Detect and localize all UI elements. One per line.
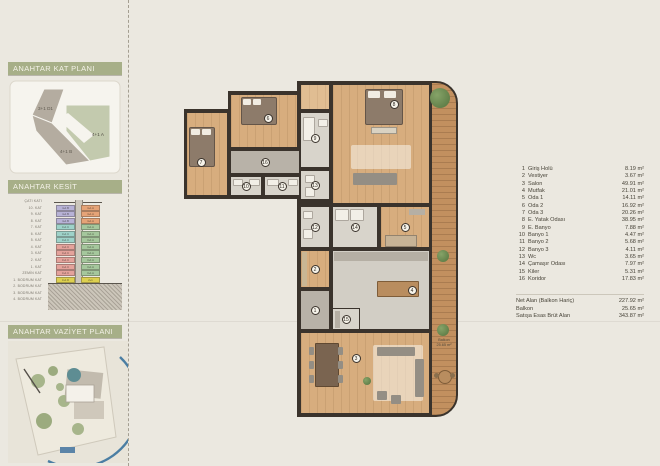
terrace-plant-icon	[437, 324, 449, 336]
legend-row: 14Çamaşır Odası7.97 m²	[516, 261, 644, 268]
section-unit-cell: 3+1 C	[56, 257, 75, 263]
key-plan-header: ANAHTAR KAT PLANI	[8, 62, 122, 75]
legend-row-area: 5.31 m²	[625, 269, 644, 276]
legend-row-area: 8.19 m²	[625, 166, 644, 173]
section-unit-cell: 3+1 C	[56, 270, 75, 276]
legend-row-name: Oda 3	[528, 210, 622, 217]
legend-row: 3Salon49.91 m²	[516, 181, 644, 188]
legend-row-name: Salon	[528, 181, 622, 188]
legend-row-name: Banyo 2	[528, 239, 625, 246]
legend-row-number: 7	[516, 210, 525, 217]
legend-row-number: 2	[516, 173, 525, 180]
terrace-chair-icon	[434, 373, 439, 378]
section-unit-cell: 3+1 A	[81, 244, 100, 250]
legend-row-number: 16	[516, 276, 525, 283]
totals-row-value: 227.92 m²	[619, 298, 644, 306]
legend-row-name: Çamaşır Odası	[528, 261, 625, 268]
site-plan-thumbnail	[8, 341, 128, 463]
legend-row-name: Kiler	[528, 269, 625, 276]
legend-row-number: 13	[516, 254, 525, 261]
legend-row-name: E. Yatak Odası	[528, 217, 622, 224]
section-unit-cell: 3+1 C	[56, 231, 75, 237]
area-totals: Net Alan (Balkon Hariç)227.92 m²Balkon25…	[516, 294, 644, 321]
room-number-badge: 12	[311, 223, 320, 232]
legend-row-name: Wc	[528, 254, 625, 261]
legend-row: 10Banyo 14.47 m²	[516, 232, 644, 239]
room-number-badge: 7	[197, 158, 206, 167]
room-number-badge: 5	[401, 223, 410, 232]
legend-row: 12Banyo 34.11 m²	[516, 247, 644, 254]
totals-row-value: 343.87 m²	[619, 313, 644, 321]
legend-row-name: Banyo 3	[528, 247, 625, 254]
legend-row-area: 5.68 m²	[625, 239, 644, 246]
legend-row-name: Koridor	[528, 276, 622, 283]
room-number-badge: 1	[311, 306, 320, 315]
arc-label-chip	[60, 447, 75, 453]
key-floor-plan-thumbnail: 3+1 D1 4+1 B 4+1 A	[8, 79, 122, 175]
building-section-diagram: ÇATI KATI10. KAT9. KAT8. KAT7. KAT6. KAT…	[8, 196, 122, 323]
section-unit-cell: 3+1 A	[81, 231, 100, 237]
balcony-label-line1: Balkon	[438, 338, 450, 342]
totals-row: Net Alan (Balkon Hariç)227.92 m²	[516, 298, 644, 306]
terrace-chair-icon	[450, 373, 455, 378]
legend-row-area: 4.11 m²	[625, 247, 644, 254]
totals-row: Balkon25.65 m²	[516, 306, 644, 314]
section-unit-cell: 3+1 C	[56, 237, 75, 243]
legend-row-number: 10	[516, 232, 525, 239]
room-number-badge: 3	[352, 354, 361, 363]
legend-row-number: 3	[516, 181, 525, 188]
legend-row: 1Giriş Holü8.19 m²	[516, 166, 644, 173]
balcony-area-label: Balkon 25.65 m²	[429, 338, 459, 347]
room-number-badge: 8	[390, 100, 399, 109]
legend-row: 11Banyo 25.68 m²	[516, 239, 644, 246]
legend-row-name: Mutfak	[528, 188, 622, 195]
legend-row: 15Kiler5.31 m²	[516, 269, 644, 276]
section-unit-cell: 4+1 B	[56, 211, 75, 217]
legend-row-number: 6	[516, 203, 525, 210]
legend-row: 8E. Yatak Odası38.95 m²	[516, 217, 644, 224]
terrace-strip	[430, 81, 458, 417]
legend-row-number: 5	[516, 195, 525, 202]
legend-row-number: 1	[516, 166, 525, 173]
section-unit-cell: 3+1 A	[81, 270, 100, 276]
section-unit-cell: 3+1 A	[81, 224, 100, 230]
legend-row-area: 3.67 m²	[625, 173, 644, 180]
room-number-badge: 9	[311, 134, 320, 143]
legend-row-area: 7.97 m²	[625, 261, 644, 268]
legend-row-number: 9	[516, 225, 525, 232]
legend-row-area: 3.65 m²	[625, 254, 644, 261]
legend-row-area: 4.47 m²	[625, 232, 644, 239]
room-number-badge: 16	[261, 158, 270, 167]
section-unit-cell: 4+1 A	[81, 205, 100, 211]
terrace-plant-icon	[437, 250, 449, 262]
legend-row-number: 4	[516, 188, 525, 195]
balcony-label-line2: 25.65 m²	[437, 343, 452, 347]
totals-row-label: Net Alan (Balkon Hariç)	[516, 298, 619, 306]
legend-row-name: Vestiyer	[528, 173, 625, 180]
key-plan-unit-d1: 3+1 D1	[38, 106, 53, 111]
legend-row: 6Oda 216.92 m²	[516, 203, 644, 210]
legend-row-area: 21.01 m²	[622, 188, 644, 195]
totals-row-value: 25.65 m²	[622, 306, 644, 314]
section-unit-cell: 3+1 A	[81, 250, 100, 256]
room-dressing	[300, 84, 330, 110]
room-oda-3	[186, 112, 228, 196]
totals-row-label: Satışa Esas Brüt Alan	[516, 313, 619, 321]
section-unit-cell: 3+1 C	[56, 264, 75, 270]
key-plan-diagram: 3+1 D1 4+1 B 4+1 A	[8, 79, 122, 175]
section-unit-cell: 3+1 A	[81, 257, 100, 263]
section-floor-label: 4. BODRUM KAT	[8, 296, 42, 303]
legend-row-name: Banyo 1	[528, 232, 625, 239]
apartment-floor-plan: Balkon 25.65 m² 12345678910111213141516	[184, 76, 460, 418]
legend-row: 16Koridor17.83 m²	[516, 276, 644, 283]
room-number-badge: 14	[351, 223, 360, 232]
room-number-badge: 2	[311, 265, 320, 274]
room-number-badge: 4	[408, 286, 417, 295]
room-legend: 1Giriş Holü8.19 m²2Vestiyer3.67 m²3Salon…	[516, 166, 644, 284]
section-unit-cell: 3+1 D	[56, 277, 75, 283]
section-floor-label: 7. KAT	[8, 224, 42, 231]
terrace-plant-icon	[430, 88, 450, 108]
legend-row-area: 38.95 m²	[622, 217, 644, 224]
legend-row: 4Mutfak21.01 m²	[516, 188, 644, 195]
section-unit-cell: 3+1 C	[56, 224, 75, 230]
legend-row-area: 20.26 m²	[622, 210, 644, 217]
section-floor-label: 2. KAT	[8, 257, 42, 264]
legend-row-area: 16.92 m²	[622, 203, 644, 210]
section-unit-cell: 4+1 A	[81, 218, 100, 224]
room-number-badge: 10	[242, 182, 251, 191]
section-unit-cell: 3+1 A	[81, 237, 100, 243]
key-plan-unit-a: 4+1 A	[92, 132, 105, 137]
section-unit-cell: 4+1 B	[56, 218, 75, 224]
legend-row-name: Oda 2	[528, 203, 622, 210]
legend-row: 13Wc3.65 m²	[516, 254, 644, 261]
legend-row-area: 17.83 m²	[622, 276, 644, 283]
section-unit-cell: 4+1 A	[81, 211, 100, 217]
room-number-badge: 15	[342, 315, 351, 324]
legend-row-number: 8	[516, 217, 525, 224]
legend-row-number: 11	[516, 239, 525, 246]
totals-row: Satışa Esas Brüt Alan343.87 m²	[516, 313, 644, 321]
room-salon	[300, 332, 430, 414]
legend-row: 5Oda 114.11 m²	[516, 195, 644, 202]
legend-row-number: 15	[516, 269, 525, 276]
key-plan-unit-b: 4+1 B	[60, 149, 72, 154]
section-unit-cell: 3+1 C	[56, 244, 75, 250]
legend-row-area: 14.11 m²	[622, 195, 644, 202]
dashed-divider	[128, 0, 129, 466]
legend-row-area: 49.91 m²	[622, 181, 644, 188]
section-unit-cell: 3+1 C	[56, 250, 75, 256]
legend-row-number: 12	[516, 247, 525, 254]
section-basement-hatch	[48, 283, 122, 310]
legend-row: 9E. Banyo7.88 m²	[516, 225, 644, 232]
legend-row-name: Oda 1	[528, 195, 622, 202]
legend-row-name: Giriş Holü	[528, 166, 625, 173]
section-unit-cell: 2+1	[81, 277, 100, 283]
brochure-page: ANAHTAR KAT PLANI 3+1 D1 4+1 B 4+1 A ANA…	[0, 0, 660, 466]
site-plan-diagram	[8, 341, 128, 463]
legend-row-name: E. Banyo	[528, 225, 625, 232]
room-number-badge: 13	[311, 181, 320, 190]
legend-row: 7Oda 320.26 m²	[516, 210, 644, 217]
legend-row: 2Vestiyer3.67 m²	[516, 173, 644, 180]
teal-roof	[67, 368, 81, 382]
room-e-yatak-odasi	[332, 84, 430, 204]
room-number-badge: 11	[278, 182, 287, 191]
section-header: ANAHTAR KESİT	[8, 180, 122, 193]
legend-row-number: 14	[516, 261, 525, 268]
section-unit-cell: 4+1 B	[56, 205, 75, 211]
legend-row-area: 7.88 m²	[625, 225, 644, 232]
section-floor-label: 3. BODRUM KAT	[8, 290, 42, 297]
site-plan-header: ANAHTAR VAZİYET PLANI	[8, 325, 122, 338]
section-unit-cell: 3+1 A	[81, 264, 100, 270]
totals-row-label: Balkon	[516, 306, 622, 314]
room-number-badge: 6	[264, 114, 273, 123]
